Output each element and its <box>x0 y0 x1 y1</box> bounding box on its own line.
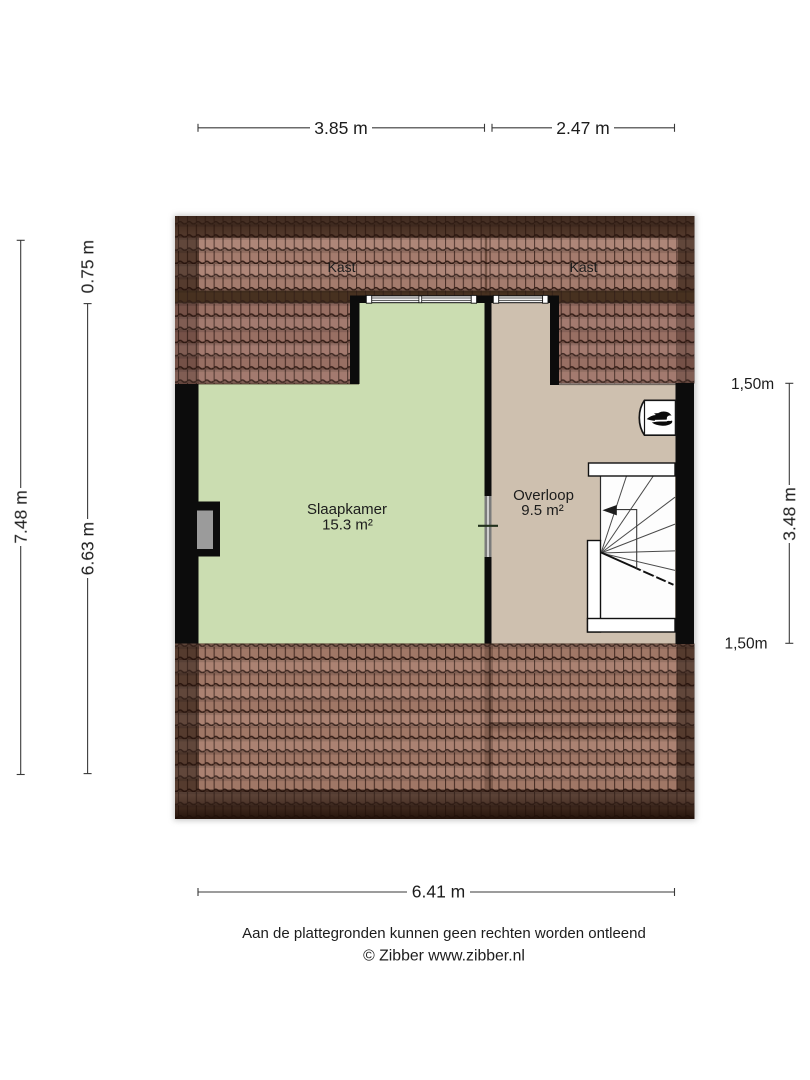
svg-text:Kast: Kast <box>327 259 355 275</box>
svg-text:© Zibber www.zibber.nl: © Zibber www.zibber.nl <box>363 948 525 965</box>
svg-text:2.47 m: 2.47 m <box>556 118 610 138</box>
svg-text:3.48 m: 3.48 m <box>779 487 799 541</box>
svg-text:1,50m: 1,50m <box>731 376 774 393</box>
svg-text:Kast: Kast <box>569 259 597 275</box>
svg-text:3.85 m: 3.85 m <box>314 118 368 138</box>
svg-text:1,50m: 1,50m <box>724 635 767 652</box>
svg-text:6.41 m: 6.41 m <box>412 882 466 902</box>
svg-text:9.5 m²: 9.5 m² <box>521 502 564 519</box>
svg-text:Aan de plattegronden kunnen ge: Aan de plattegronden kunnen geen rechten… <box>242 925 646 942</box>
svg-text:6.63 m: 6.63 m <box>78 522 98 576</box>
svg-text:Slaapkamer: Slaapkamer <box>307 501 387 518</box>
svg-text:15.3 m²: 15.3 m² <box>322 517 373 534</box>
svg-text:0.75 m: 0.75 m <box>78 240 98 294</box>
svg-text:7.48 m: 7.48 m <box>11 490 31 544</box>
